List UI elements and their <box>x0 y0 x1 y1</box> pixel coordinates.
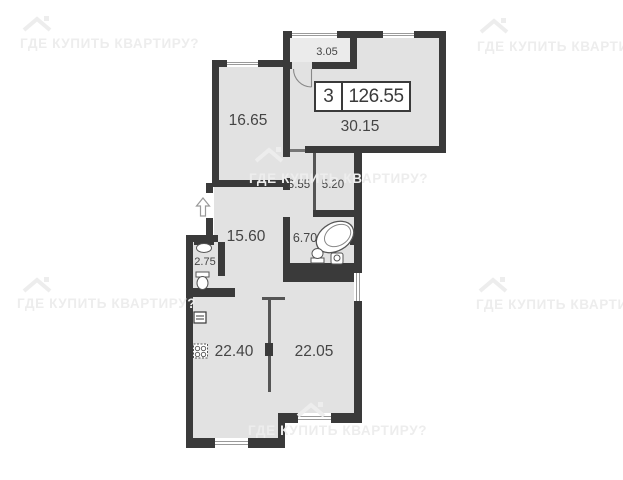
room-label-wc: 2.75 <box>194 256 215 268</box>
room-label-bathroom: 6.70 <box>293 231 317 245</box>
room-label-living: 30.15 <box>341 118 380 136</box>
house-icon <box>478 276 508 294</box>
room-label-balcony: 3.05 <box>316 46 337 58</box>
house-icon <box>254 146 284 164</box>
floor-plan: 3.05 30.15 16.65 3.55 5.20 15.60 6.70 2.… <box>0 0 623 480</box>
sink-icon <box>331 253 343 264</box>
house-icon <box>296 401 326 419</box>
house-icon <box>479 17 509 35</box>
toilet-icon <box>311 249 324 264</box>
room-label-room2: 22.05 <box>295 343 334 361</box>
sink-icon <box>194 241 214 253</box>
entrance-arrow-icon <box>197 198 210 216</box>
watermark-text: ГДЕ КУПИТЬ КВАРТИРУ? <box>249 171 428 186</box>
stove-icon <box>194 344 208 358</box>
title-block: 3 126.55 <box>314 81 411 112</box>
door-swing-icon <box>294 69 312 87</box>
watermark-text: ГДЕ КУПИТЬ КВАРТИРУ? <box>477 39 623 54</box>
total-area: 126.55 <box>343 83 409 110</box>
watermark-text: ГДЕ КУПИТЬ КВАРТИРУ? <box>20 36 199 51</box>
watermark-text: ГДЕ КУПИТЬ КВАРТИРУ? <box>17 296 196 311</box>
watermark-text: ГДЕ КУПИТЬ КВАРТИРУ? <box>476 297 623 312</box>
room-label-bedroom: 16.65 <box>229 112 268 130</box>
watermark-text: ГДЕ КУПИТЬ КВАРТИРУ? <box>248 423 427 438</box>
rooms-count: 3 <box>316 83 343 110</box>
electric-panel-icon <box>194 312 206 323</box>
house-icon <box>22 15 52 33</box>
toilet-icon <box>196 272 209 290</box>
room-label-corridor: 15.60 <box>227 228 266 246</box>
house-icon <box>22 276 52 294</box>
room-label-kitchen: 22.40 <box>215 343 254 361</box>
